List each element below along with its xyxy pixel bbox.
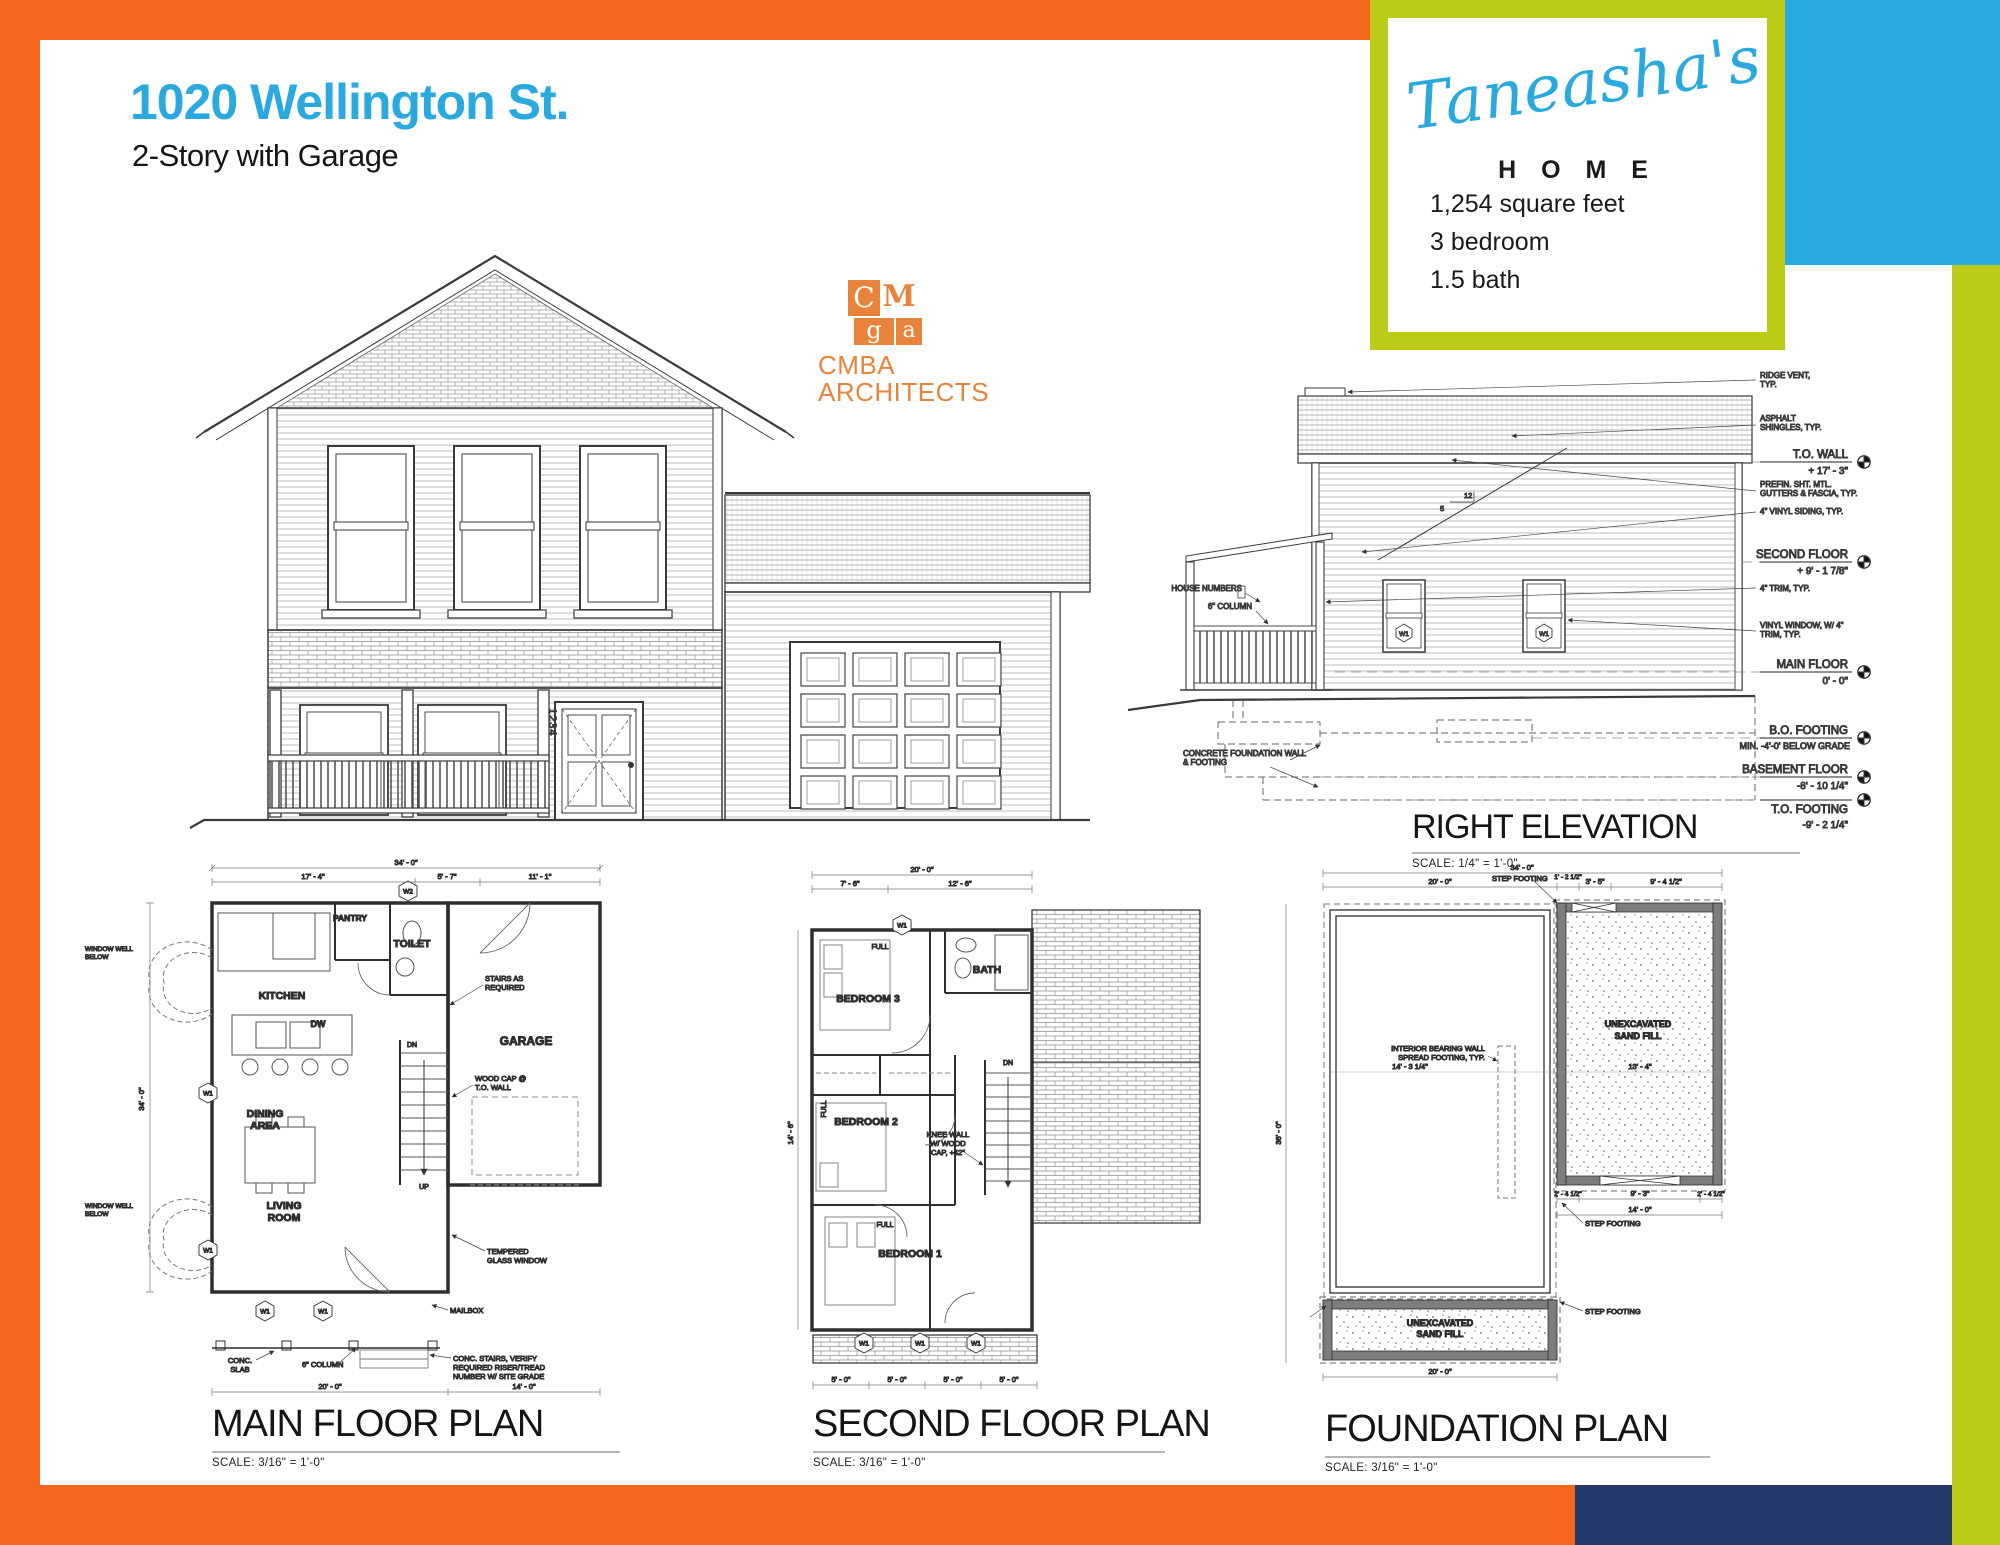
bed-size: FULL: [876, 1222, 893, 1229]
front-door: [555, 702, 643, 820]
note-stairs-2: REQUIRED: [485, 983, 525, 992]
label-up: UP: [419, 1184, 429, 1191]
room-bed3: BEDROOM 3: [836, 993, 900, 1005]
dim-seg2: 5' - 7": [437, 872, 456, 881]
note-slab: CONC.: [228, 1356, 252, 1365]
slope-run-label: 5: [1440, 504, 1444, 513]
dim-seg3: 11' - 1": [529, 872, 552, 881]
callout-window-2: TRIM, TYP.: [1760, 630, 1801, 639]
dim-seg1: 17' - 4": [301, 872, 325, 881]
foundation-titleblock: FOUNDATION PLAN SCALE: 3/16" = 1'-0": [1325, 1408, 1710, 1474]
note-leader: [964, 1152, 983, 1165]
level-label: B.O. FOOTING: [1769, 725, 1848, 737]
dim-overall: 34' - 0": [394, 858, 418, 867]
label-dn: DN: [407, 1042, 417, 1049]
label-sand-fill-2: SAND FILL: [1417, 1329, 1464, 1339]
dim-left: 34' - 0": [137, 1087, 146, 1111]
car-space: [472, 1097, 578, 1175]
label-bearing: INTERIOR BEARING WALL: [1391, 1044, 1485, 1053]
frame-top-orange-bar: [0, 0, 1370, 40]
room-dining-2: AREA: [250, 1120, 280, 1132]
second-floor-title: SECOND FLOOR PLAN: [813, 1403, 1165, 1453]
dim-mid2: 13' - 4": [1628, 1062, 1652, 1071]
label-step-footing: STEP FOOTING: [1585, 1219, 1641, 1228]
side-wall: [1312, 448, 1742, 690]
label-bearing-2: SPREAD FOOTING, TYP.: [1398, 1053, 1485, 1062]
stat-bedrooms: 3 bedroom: [1430, 228, 1760, 257]
tag-w1: W1: [897, 923, 907, 930]
tag-w1: W1: [859, 1341, 869, 1348]
room-bed2: BEDROOM 2: [834, 1116, 898, 1128]
front-shake-band: [268, 630, 722, 688]
window-tag: W1: [1539, 631, 1549, 638]
callout-foundation-2: & FOOTING: [1183, 758, 1227, 767]
tag-w1: W1: [203, 1248, 213, 1255]
label-sand-fill: UNEXCAVATED: [1605, 1019, 1672, 1029]
callout-ridge-vent: RIDGE VENT,: [1760, 371, 1810, 380]
front-first-story: 1234: [268, 688, 722, 820]
garage-foundation: [1554, 900, 1725, 1191]
dim-seg4: 9' - 4 1/2": [1650, 877, 1682, 886]
note-woodcap: WOOD CAP @: [475, 1074, 526, 1083]
room-dining: DINING: [247, 1108, 284, 1120]
stairs: [985, 1073, 1032, 1187]
note-kneewall-2: W/ WOOD: [930, 1139, 966, 1148]
room-toilet: TOILET: [393, 938, 431, 950]
note-tempered: TEMPERED: [487, 1247, 529, 1256]
door-swings: [875, 1015, 975, 1323]
dim-g2: 9' - 3": [1630, 1189, 1649, 1198]
note-kneewall: KNEE WALL: [927, 1130, 970, 1139]
side-window: W1: [1383, 580, 1425, 652]
room-bath: BATH: [973, 964, 1001, 976]
callout-house-numbers: HOUSE NUMBERS: [1171, 584, 1242, 593]
note-mailbox: MAILBOX: [450, 1306, 483, 1315]
callout-gutters: PREFIN. SHT. MTL.: [1760, 480, 1832, 489]
level-value: 0' - 0": [1823, 676, 1849, 687]
callout-gutters-2: GUTTERS & FASCIA, TYP.: [1760, 489, 1858, 498]
dim-g1b: 2' - 4 1/2": [1697, 1191, 1725, 1198]
dim-porch: 5' - 0": [887, 1375, 906, 1384]
dim-bottom2: 14' - 0": [512, 1382, 536, 1391]
callout-trim: 4" TRIM, TYP.: [1760, 584, 1810, 593]
main-floor-titleblock: MAIN FLOOR PLAN SCALE: 3/16" = 1'-0": [212, 1403, 620, 1469]
level-label: MAIN FLOOR: [1776, 659, 1848, 671]
dim-seg3: 3' - 5": [1585, 877, 1604, 886]
callout-column: 6" COLUMN: [1208, 602, 1252, 611]
dim-garage-w: 14' - 0": [1628, 1205, 1652, 1214]
page-title: 1020 Wellington St.: [130, 73, 569, 131]
frame-bottom-navy-bar: [1575, 1485, 1952, 1545]
stairs: [400, 1053, 448, 1175]
label-dn: DN: [1003, 1060, 1013, 1067]
right-elevation-scale: SCALE: 1/4" = 1'-0": [1412, 858, 1800, 870]
dim-bottom: 20' - 0": [1428, 1367, 1452, 1376]
dim-seg2: 1' - 2 1/2": [1554, 874, 1582, 881]
dim-seg1: 20' - 0": [1428, 877, 1452, 886]
room-pantry: PANTRY: [333, 913, 367, 923]
tag-w1: W1: [318, 1309, 328, 1316]
label-sand-fill: UNEXCAVATED: [1407, 1318, 1474, 1328]
main-floor-title: MAIN FLOOR PLAN: [212, 1403, 620, 1453]
callout-shingles: ASPHALT: [1760, 414, 1796, 423]
note-tempered-2: GLASS WINDOW: [487, 1256, 548, 1265]
callout-siding: 4" VINYL SIDING, TYP.: [1760, 507, 1843, 516]
dim-overall: 20' - 0": [910, 865, 934, 874]
level-label: T.O. WALL: [1793, 449, 1849, 461]
note-stairs: STAIRS AS: [485, 974, 523, 983]
right-elevation-drawing: 12 5 W1 W1: [1120, 290, 1880, 815]
upper-window: [574, 446, 672, 618]
bed-size: FULL: [821, 1100, 828, 1117]
side-window: W1: [1523, 580, 1565, 652]
room-living-2: ROOM: [268, 1212, 301, 1224]
dim-left: 36' - 0": [1274, 1121, 1283, 1145]
label-step-footing: STEP FOOTING: [1492, 874, 1548, 883]
callout-window: VINYL WINDOW, W/ 4": [1760, 621, 1844, 630]
upper-window: [448, 446, 546, 618]
tag-w1: W1: [915, 1341, 925, 1348]
dim-porch: 5' - 0": [831, 1375, 850, 1384]
bed-size: FULL: [871, 944, 888, 951]
frame-bottom-orange-bar: [0, 1485, 1575, 1545]
home-label: H O M E: [1388, 156, 1767, 185]
second-floor-scale: SCALE: 3/16" = 1'-0": [813, 1457, 1165, 1469]
dim-mid1: 14' - 3 1/4": [1392, 1062, 1428, 1071]
note-concstairs-2: REQUIRED RISER/TREAD: [453, 1363, 546, 1372]
window-wells: [149, 942, 212, 1279]
callout-shingles-2: SHINGLES, TYP.: [1760, 423, 1822, 432]
frame-right-lime-bar: [1952, 265, 2000, 1545]
level-label: SECOND FLOOR: [1756, 549, 1848, 561]
room-living: LIVING: [266, 1200, 301, 1212]
foundation-scale: SCALE: 3/16" = 1'-0": [1325, 1462, 1710, 1474]
dim-porch: 5' - 0": [943, 1375, 962, 1384]
note-kneewall-3: CAP, +42": [931, 1148, 965, 1157]
owner-name-script: Taneasha's: [1403, 25, 1750, 146]
callout-foundation: CONCRETE FOUNDATION WALL: [1183, 749, 1307, 758]
tag-w1: W1: [260, 1309, 270, 1316]
bath-fixtures: [955, 935, 1028, 990]
main-floor-plan-drawing: W2 W1 W1 W1 W1 34' - 0" 17' - 4" 5' - 7"…: [60, 855, 620, 1405]
callout-ridge-vent-2: TYP.: [1760, 380, 1777, 389]
room-bed1: BEDROOM 1: [878, 1248, 942, 1260]
house-foundation: [1324, 904, 1556, 1299]
side-roof: [1298, 388, 1752, 463]
dim-left: 14' - 6": [786, 1121, 795, 1145]
bearing-footing: [1498, 1046, 1515, 1198]
label-sand-fill-2: SAND FILL: [1615, 1031, 1662, 1041]
label-leaders: [1310, 879, 1583, 1317]
right-elevation-title: RIGHT ELEVATION: [1412, 808, 1800, 854]
dim-porch: 5' - 0": [999, 1375, 1018, 1384]
level-value: MIN. -4'-0' BELOW GRADE: [1740, 741, 1850, 751]
second-floor-titleblock: SECOND FLOOR PLAN SCALE: 3/16" = 1'-0": [813, 1403, 1165, 1469]
note-window-well: WINDOW WELL: [85, 946, 133, 953]
dim-bottom1: 20' - 0": [318, 1382, 342, 1391]
dim-seg1: 7' - 6": [840, 879, 859, 888]
roof-below-hatch: [813, 910, 1200, 1363]
note-concstairs: CONC. STAIRS, VERIFY: [453, 1354, 537, 1363]
slope-rise-label: 12: [1464, 491, 1472, 500]
dim-g1: 2' - 4 1/2": [1554, 1191, 1582, 1198]
page-subtitle: 2-Story with Garage: [132, 138, 398, 174]
note-column: 6" COLUMN: [302, 1360, 343, 1369]
room-garage: GARAGE: [500, 1034, 553, 1048]
foundation-dashed: [1218, 696, 1755, 800]
corner-cyan-block: [1785, 0, 2000, 265]
note-window-well: WINDOW WELL: [85, 1203, 133, 1210]
frame-left-orange-bar: [0, 0, 40, 1545]
front-elevation-drawing: 1234: [150, 250, 1100, 830]
second-floor-plan-drawing: W1 W1 W1 W1 20' - 0" 7' - 6" 12' - 6" 5'…: [780, 865, 1210, 1405]
dim-seg2: 12' - 6": [948, 879, 972, 888]
room-kitchen: KITCHEN: [259, 990, 306, 1002]
level-label: BASEMENT FLOOR: [1742, 764, 1848, 776]
level-value: + 9' - 1 7/8": [1797, 566, 1848, 577]
level-value: -9' - 2 1/4": [1803, 820, 1849, 831]
tag-w2: W2: [403, 889, 413, 896]
dim-lines: [146, 864, 603, 1396]
note-slab-2: SLAB: [230, 1365, 249, 1374]
front-garage: [725, 493, 1090, 820]
tag-w1: W1: [971, 1341, 981, 1348]
note-woodcap-2: T.O. WALL: [475, 1083, 511, 1092]
front-second-story: [268, 408, 722, 630]
foundation-plan-drawing: 34' - 0" 20' - 0" 1' - 2 1/2" 3' - 5" 9'…: [1270, 865, 1790, 1405]
dim-lines: [798, 871, 1037, 1389]
foundation-title: FOUNDATION PLAN: [1325, 1408, 1710, 1458]
sheet: 1020 Wellington St. 2-Story with Garage …: [0, 0, 2000, 1545]
right-elevation-titleblock: RIGHT ELEVATION SCALE: 1/4" = 1'-0": [1412, 808, 1800, 870]
window-tag: W1: [1399, 631, 1409, 638]
stat-sqft: 1,254 square feet: [1430, 190, 1760, 219]
grade-line: [1128, 696, 1755, 710]
main-floor-scale: SCALE: 3/16" = 1'-0": [212, 1457, 620, 1469]
note-window-well-2: BELOW: [85, 1211, 109, 1218]
ground-line: [190, 820, 1090, 828]
tag-w1: W1: [203, 1091, 213, 1098]
label-dw: DW: [311, 1019, 326, 1029]
note-window-well-2: BELOW: [85, 954, 109, 961]
window-tags: [199, 881, 417, 1321]
label-step-footing: STEP FOOTING: [1585, 1307, 1641, 1316]
level-value: -8' - 10 1/4": [1797, 781, 1848, 792]
note-concstairs-3: NUMBER W/ SITE GRADE: [453, 1372, 544, 1381]
level-value: + 17' - 3": [1808, 466, 1848, 477]
upper-window: [322, 446, 420, 618]
